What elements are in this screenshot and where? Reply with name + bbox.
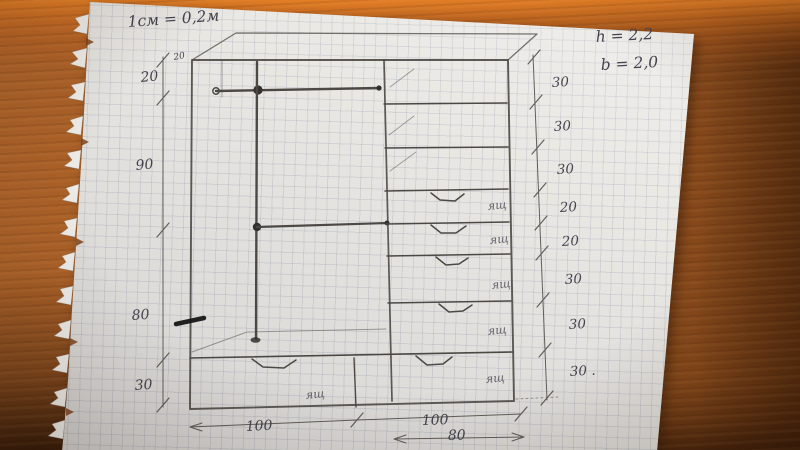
scale-note: 1см = 0,2м: [127, 7, 220, 31]
dim-left-label-0: 20: [139, 68, 159, 86]
dimension-chain-bottom: [190, 407, 527, 443]
bottom-dim-line-1: [190, 414, 521, 427]
dim-right-label-2: 30: [556, 161, 574, 178]
top-hanging-rod: [216, 88, 380, 91]
corner-note: 20: [172, 51, 186, 63]
dim-right-label-6: 30: [568, 316, 586, 333]
drawer-handle: [416, 356, 452, 365]
pole-foot: [251, 337, 261, 343]
dim-right-label-5: 30: [564, 271, 582, 288]
dim-right-label-1: 30: [553, 118, 571, 135]
drawer-handle: [439, 304, 472, 312]
interior-floor-perspective: [192, 329, 386, 352]
drawer-label-2: ящ: [491, 276, 511, 292]
rod-end-dot: [376, 85, 381, 90]
drawer-label-4: ящ: [485, 370, 505, 386]
drawer-label-5: ящ: [305, 386, 325, 402]
drawer-handles: [252, 193, 472, 368]
drawer-label-3: ящ: [487, 322, 507, 338]
bottom-row-top-line: [190, 352, 513, 358]
dim-right-label-0: 30: [551, 74, 569, 91]
dim-left-label-2: 80: [131, 307, 150, 324]
top-face-perspective: [192, 33, 537, 60]
dim-bottom-label-0: 100: [245, 418, 273, 435]
right-chain-line: [533, 55, 547, 400]
hanging-section: [176, 62, 390, 343]
drawer-label-0: ящ: [487, 197, 507, 213]
shelf-line-2: [385, 147, 508, 148]
dimension-chain-right: [516, 50, 558, 405]
shelf-line-1: [384, 103, 507, 104]
dimension-chain-left: [157, 53, 169, 412]
dim-left-label-1: 90: [135, 156, 154, 173]
drawer-handle: [436, 257, 468, 265]
drawer-handle: [252, 359, 296, 368]
drawer-handle: [431, 225, 466, 233]
torn-edge-tabs: [48, 14, 89, 439]
drawer-line-3: [387, 254, 510, 256]
drawer-handle: [431, 193, 464, 201]
drawer-line-4: [388, 301, 511, 303]
drawer-label-1: ящ: [489, 231, 509, 247]
middle-rod-end-dot: [385, 221, 390, 226]
bottom-row-divider: [354, 358, 356, 407]
dim-bottom-label-1: 100: [422, 412, 449, 429]
dim-bottom-label-2: 80: [448, 427, 466, 444]
pen-mark: [176, 318, 204, 324]
height-note: h = 2,2: [595, 25, 653, 46]
middle-hanging-rod: [257, 223, 388, 227]
width-note: b = 2,0: [600, 53, 658, 74]
extension-dotted-line: [516, 397, 558, 399]
dim-left-label-3: 30: [134, 377, 153, 394]
drawer-line-2: [386, 222, 509, 224]
center-divider: [384, 60, 392, 401]
shelf-drawer-section: [190, 69, 513, 407]
vertical-pole: [256, 62, 257, 339]
drawer-line-1: [385, 189, 508, 191]
dim-right-label-3: 20: [558, 199, 577, 216]
photo-of-sketch: 1см = 0,2м h = 2,2 b = 2,0 20 20 90 80 3…: [0, 0, 800, 450]
dim-right-label-7: 30 .: [569, 363, 596, 380]
dim-right-label-4: 20: [560, 233, 579, 250]
wardrobe-sketch: 1см = 0,2м h = 2,2 b = 2,0 20 20 90 80 3…: [0, 0, 800, 450]
handwritten-notes: 1см = 0,2м h = 2,2 b = 2,0 20 20 90 80 3…: [127, 7, 659, 444]
shelf-depth-diagonals: [389, 69, 416, 171]
